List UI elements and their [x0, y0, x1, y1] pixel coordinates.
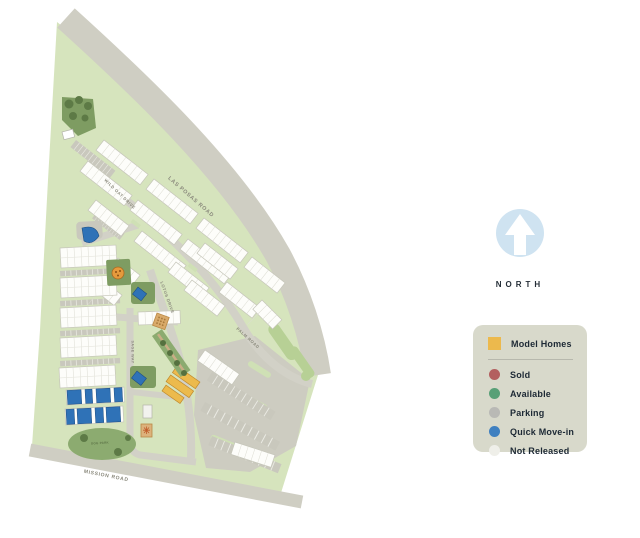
- legend-label: Sold: [510, 370, 530, 380]
- tree-icon: [69, 112, 77, 120]
- legend-divider: [488, 359, 573, 360]
- legend-item-sold: Sold: [488, 365, 587, 384]
- model-homes-swatch-icon: [488, 337, 501, 350]
- tree-icon: [75, 96, 83, 104]
- legend-label: Parking: [510, 408, 544, 418]
- north-indicator: NORTH: [480, 205, 560, 289]
- sold-swatch-icon: [489, 369, 500, 380]
- tree-icon: [80, 434, 88, 442]
- building-row: [59, 365, 116, 388]
- quick-move-in-swatch-icon: [489, 426, 500, 437]
- dog-park: DOG PARK: [68, 428, 136, 460]
- playground-icon: [112, 267, 124, 279]
- parking-swatch-icon: [489, 407, 500, 418]
- road-label-sage: SAGE WAY: [131, 340, 135, 363]
- building-row: [60, 335, 117, 358]
- legend-label: Quick Move-in: [510, 427, 574, 437]
- legend-item-not-released: Not Released: [488, 441, 587, 460]
- building-row: [60, 305, 117, 328]
- legend-label: Available: [510, 389, 551, 399]
- tree-icon: [174, 360, 180, 366]
- tree-icon: [84, 102, 92, 110]
- not-released-swatch-icon: [489, 445, 500, 456]
- legend-label: Not Released: [510, 446, 569, 456]
- tree-icon: [125, 435, 131, 441]
- tree-icon: [114, 448, 122, 456]
- tree-icon: [181, 370, 187, 376]
- legend-item-model-homes: Model Homes: [488, 334, 587, 353]
- small-structure: [143, 405, 152, 418]
- tree-icon: [160, 340, 166, 346]
- legend-label: Model Homes: [511, 339, 572, 349]
- legend-item-available: Available: [488, 384, 587, 403]
- north-arrow-icon: [490, 205, 550, 261]
- tree-icon: [65, 100, 74, 109]
- playground-amenity: [106, 259, 131, 286]
- amenity-star-icon: [141, 424, 152, 437]
- available-swatch-icon: [489, 388, 500, 399]
- legend-item-parking: Parking: [488, 403, 587, 422]
- legend-item-quick-move-in: Quick Move-in: [488, 422, 587, 441]
- legend: Model Homes Sold Available Parking Quick…: [473, 325, 587, 452]
- tree-icon: [82, 115, 89, 122]
- site-map-page: DOG PARK LAS POSAS ROAD WILD OAT DRIVE: [0, 0, 640, 538]
- tree-icon: [167, 350, 173, 356]
- north-label: NORTH: [480, 280, 560, 289]
